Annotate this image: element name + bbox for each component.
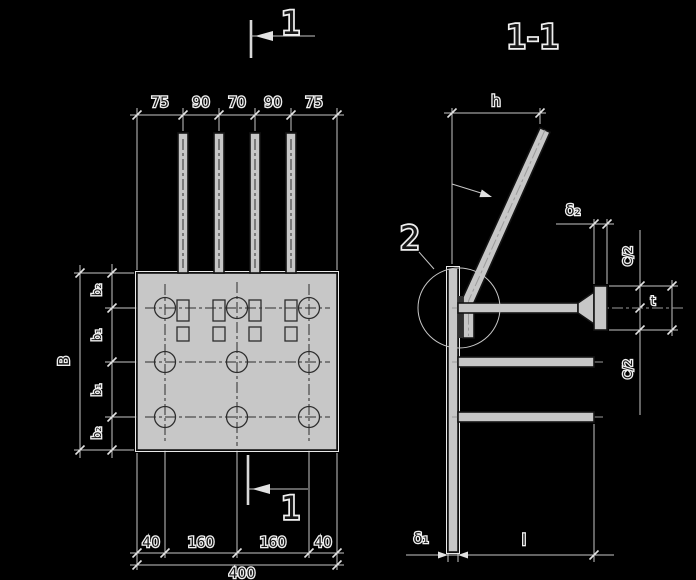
anchor-leader (452, 184, 492, 197)
section-dimension-ticks (448, 109, 677, 560)
stud-head (578, 292, 594, 324)
dim-label-h: h (491, 92, 501, 110)
stud-shank (458, 303, 578, 313)
dim-label: 40 (142, 535, 160, 551)
dim-label-overall-length: 400 (229, 566, 256, 580)
dim-label-overall-width: B (55, 356, 73, 366)
section-view: 1-1 (400, 17, 684, 562)
anchor-washer-plate (594, 286, 607, 330)
section-mark-top-label: 1 (281, 4, 301, 42)
dim-label: 90 (264, 95, 282, 111)
anchor-bars-plan (178, 133, 296, 273)
dim-label: 90 (192, 95, 210, 111)
dim-label-delta2: δ₂ (565, 201, 580, 219)
section-mark-bottom-label: 1 (281, 489, 301, 527)
section-title: 1-1 (506, 17, 560, 56)
dim-label: b₂ (90, 284, 104, 297)
studs-section (452, 286, 684, 422)
dim-label-t: t (651, 294, 656, 308)
dim-label: 75 (151, 95, 169, 111)
detail-leader (419, 252, 434, 269)
section-dimension-lines (406, 113, 672, 555)
dim-label: 75 (305, 95, 323, 111)
detail-callout-label: 2 (400, 219, 420, 257)
dim-label: 70 (228, 95, 246, 111)
plan-view: 1 1 75 90 70 90 75 B b₂ b₁ b₁ b₂ 40 160 … (55, 4, 344, 580)
dim-label-c2-top: C/2 (621, 246, 635, 266)
dim-label: 160 (188, 535, 215, 551)
dim-label-c2-bottom: C/2 (621, 359, 635, 379)
dim-label-l: l (522, 531, 526, 549)
section-extension-lines (448, 108, 678, 562)
stud-shank (458, 357, 594, 367)
dim-label: 160 (260, 535, 287, 551)
engineering-drawing: 1 1 75 90 70 90 75 B b₂ b₁ b₁ b₂ 40 160 … (0, 0, 696, 580)
dim-label: 40 (314, 535, 332, 551)
base-plate-edge (448, 268, 458, 552)
section-arrow (252, 484, 270, 494)
section-mark-top: 1 (251, 4, 315, 58)
dim-label: b₁ (90, 384, 104, 397)
dim-label: b₁ (90, 329, 104, 342)
section-mark-bottom: 1 (248, 455, 308, 527)
drawing-canvas: 1 1 75 90 70 90 75 B b₂ b₁ b₁ b₂ 40 160 … (0, 0, 696, 580)
stud-shank (458, 412, 594, 422)
dim-label-delta1: δ₁ (413, 529, 428, 547)
dim-label: b₂ (90, 427, 104, 440)
section-arrow (255, 31, 273, 41)
